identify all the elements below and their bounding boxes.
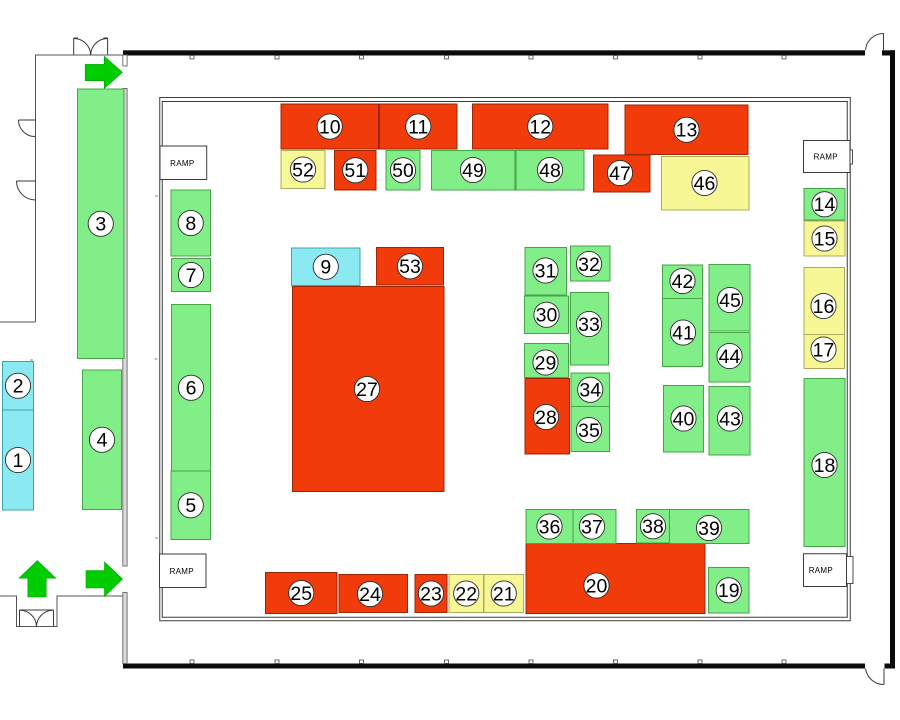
svg-text:40: 40	[673, 408, 695, 430]
svg-text:32: 32	[578, 254, 600, 276]
svg-text:39: 39	[698, 518, 720, 540]
svg-text:46: 46	[694, 173, 716, 195]
svg-text:3: 3	[95, 214, 106, 236]
svg-text:33: 33	[578, 314, 600, 336]
svg-text:17: 17	[813, 339, 835, 361]
svg-text:37: 37	[581, 516, 603, 538]
svg-text:13: 13	[676, 120, 698, 142]
svg-text:14: 14	[814, 194, 836, 216]
svg-text:19: 19	[718, 580, 740, 602]
svg-text:12: 12	[529, 116, 551, 138]
svg-text:15: 15	[814, 228, 836, 250]
svg-text:51: 51	[344, 160, 366, 182]
svg-text:34: 34	[579, 380, 601, 402]
svg-text:42: 42	[672, 271, 694, 293]
svg-text:29: 29	[535, 352, 557, 374]
svg-text:21: 21	[493, 583, 515, 605]
svg-text:4: 4	[97, 430, 108, 452]
svg-text:52: 52	[292, 159, 314, 181]
svg-text:36: 36	[539, 516, 561, 538]
svg-text:11: 11	[408, 116, 428, 138]
svg-text:RAMP: RAMP	[814, 153, 838, 162]
svg-text:31: 31	[535, 260, 557, 282]
svg-text:7: 7	[186, 265, 197, 287]
svg-text:28: 28	[535, 407, 557, 429]
svg-text:5: 5	[185, 495, 196, 517]
svg-text:27: 27	[356, 379, 378, 401]
svg-text:49: 49	[462, 160, 484, 182]
svg-text:2: 2	[13, 376, 24, 398]
svg-text:30: 30	[536, 305, 558, 327]
svg-text:47: 47	[609, 163, 631, 185]
svg-text:RAMP: RAMP	[170, 567, 194, 576]
svg-text:RAMP: RAMP	[809, 566, 833, 575]
svg-text:25: 25	[290, 583, 312, 605]
svg-text:41: 41	[672, 322, 694, 344]
svg-text:10: 10	[319, 116, 341, 138]
svg-text:48: 48	[539, 160, 561, 182]
svg-text:8: 8	[185, 213, 196, 235]
svg-text:50: 50	[392, 160, 414, 182]
svg-text:43: 43	[719, 408, 741, 430]
svg-text:20: 20	[586, 575, 608, 597]
svg-text:44: 44	[719, 346, 741, 368]
svg-text:6: 6	[186, 378, 197, 400]
svg-text:23: 23	[420, 583, 442, 605]
svg-text:RAMP: RAMP	[170, 159, 194, 168]
svg-text:35: 35	[578, 420, 600, 442]
svg-text:24: 24	[359, 584, 381, 606]
svg-text:53: 53	[399, 256, 421, 278]
svg-text:16: 16	[813, 296, 835, 318]
svg-text:1: 1	[13, 450, 24, 472]
svg-text:9: 9	[320, 257, 331, 279]
svg-text:45: 45	[719, 290, 741, 312]
svg-text:38: 38	[642, 516, 664, 538]
svg-text:18: 18	[814, 455, 836, 477]
svg-text:22: 22	[455, 583, 477, 605]
